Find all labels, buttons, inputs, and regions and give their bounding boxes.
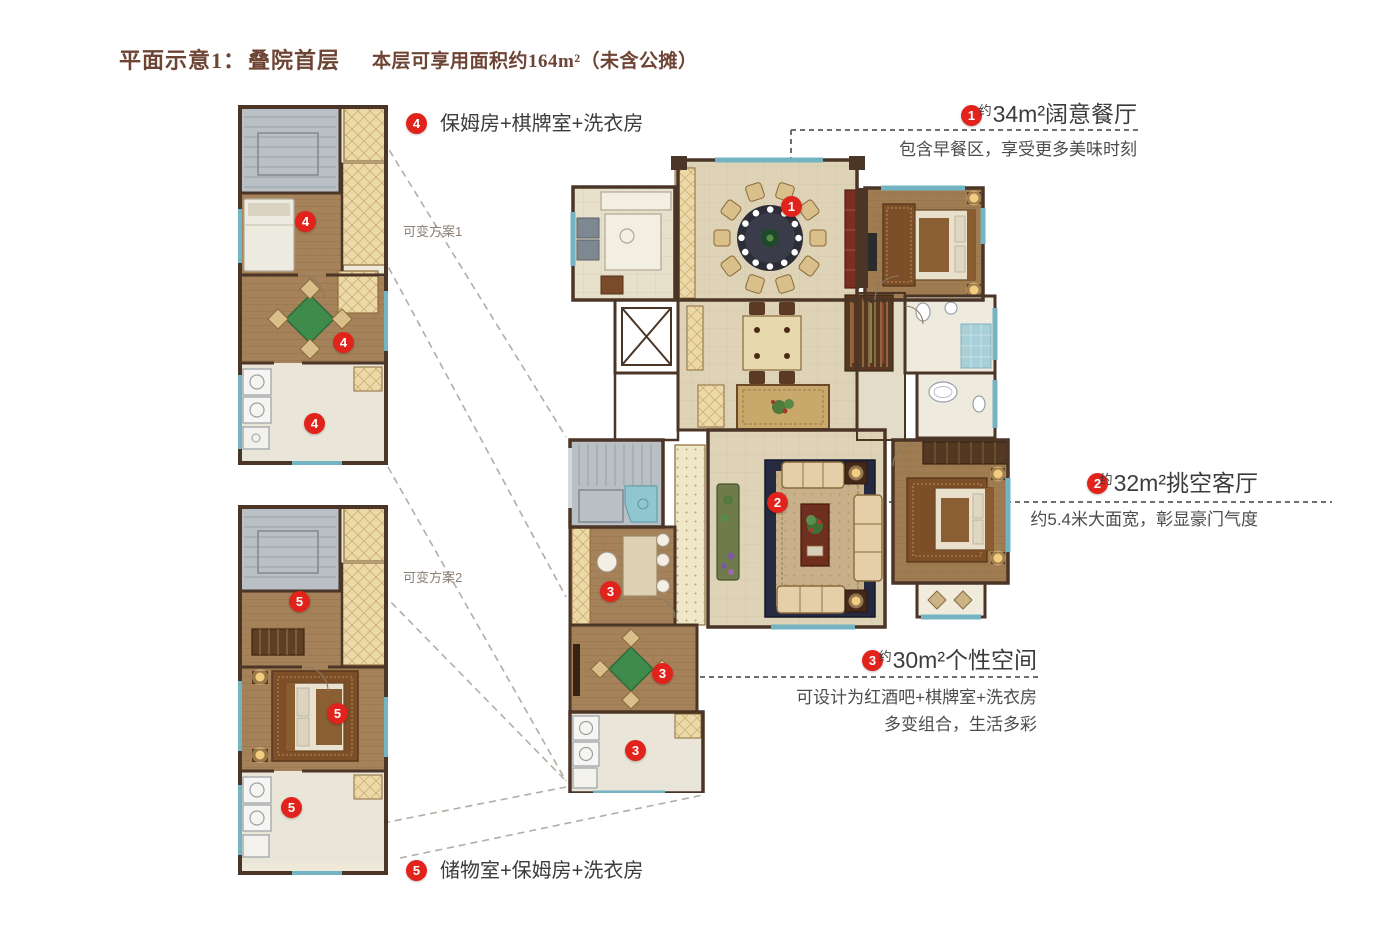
coffee-table (801, 504, 829, 566)
annotation-2-title: 32m²挑空客厅 (1114, 470, 1258, 496)
annotation-4-badge: 4 (406, 113, 427, 134)
annotation-3-desc1: 可设计为红酒吧+棋牌室+洗衣房 (691, 688, 1037, 708)
annotation-2-approx: 约 (1100, 472, 1113, 487)
marker-4-chess-room: 4 (333, 332, 354, 353)
stairs (240, 507, 340, 591)
stairs (240, 107, 340, 193)
variant-2-label: 可变方案2 (403, 567, 462, 586)
variant-1-label: 可变方案1 (403, 221, 462, 240)
marker-5-laundry: 5 (281, 797, 302, 818)
floorplan-page: 平面示意1： 叠院首层 本层可享用面积约164m²（未含公摊） (0, 0, 1400, 933)
annotation-3-title: 30m²个性空间 (893, 647, 1037, 673)
variant-plan-1-drawing (238, 105, 388, 465)
page-title-area-note: 本层可享用面积约164m²（未含公摊） (372, 46, 698, 73)
variant-plan-1 (238, 105, 388, 465)
variant-plan-2 (238, 505, 388, 875)
annotation-2-desc: 约5.4米大面宽，彰显豪门气度 (912, 510, 1258, 530)
annotation-3-approx: 约 (879, 649, 892, 664)
annotation-5-label: 储物室+保姆房+洗衣房 (440, 859, 643, 883)
marker-1-dining: 1 (781, 196, 802, 217)
marker-3-bar: 3 (600, 581, 621, 602)
annotation-4-label: 保姆房+棋牌室+洗衣房 (440, 112, 643, 136)
plant-console (717, 484, 739, 580)
storage-shelf (252, 629, 304, 655)
marker-4-nanny-room: 4 (295, 211, 316, 232)
variant-plan-2-drawing (238, 505, 388, 875)
annotation-3-headline: 约30m²个性空间 (691, 647, 1037, 677)
annotation-3-desc2: 多变组合，生活多彩 (691, 715, 1037, 735)
void-room (615, 373, 678, 440)
wardrobes (342, 507, 386, 665)
marker-4-laundry: 4 (304, 413, 325, 434)
annotation-1-title: 34m²阔意餐厅 (993, 101, 1137, 127)
marker-5-storage: 5 (289, 591, 310, 612)
marker-5-bedroom: 5 (327, 703, 348, 724)
elevator (615, 300, 678, 373)
annotation-2-headline: 约32m²挑空客厅 (912, 470, 1258, 500)
annotation-5-badge: 5 (406, 860, 427, 881)
page-title-name: 叠院首层 (248, 43, 340, 75)
marker-2-living: 2 (767, 492, 788, 513)
annotation-1-desc: 包含早餐区，享受更多美味时刻 (791, 140, 1137, 160)
bookcase (845, 295, 893, 371)
page-title-prefix: 平面示意1： (119, 43, 246, 75)
annotation-1-approx: 约 (979, 103, 992, 118)
balcony-floor (917, 583, 985, 617)
annotation-1-headline: 约34m²阔意餐厅 (791, 101, 1137, 131)
hall-rug (737, 385, 829, 429)
bed (244, 199, 294, 271)
marker-3-laundry: 3 (625, 740, 646, 761)
marker-3-chess: 3 (652, 663, 673, 684)
